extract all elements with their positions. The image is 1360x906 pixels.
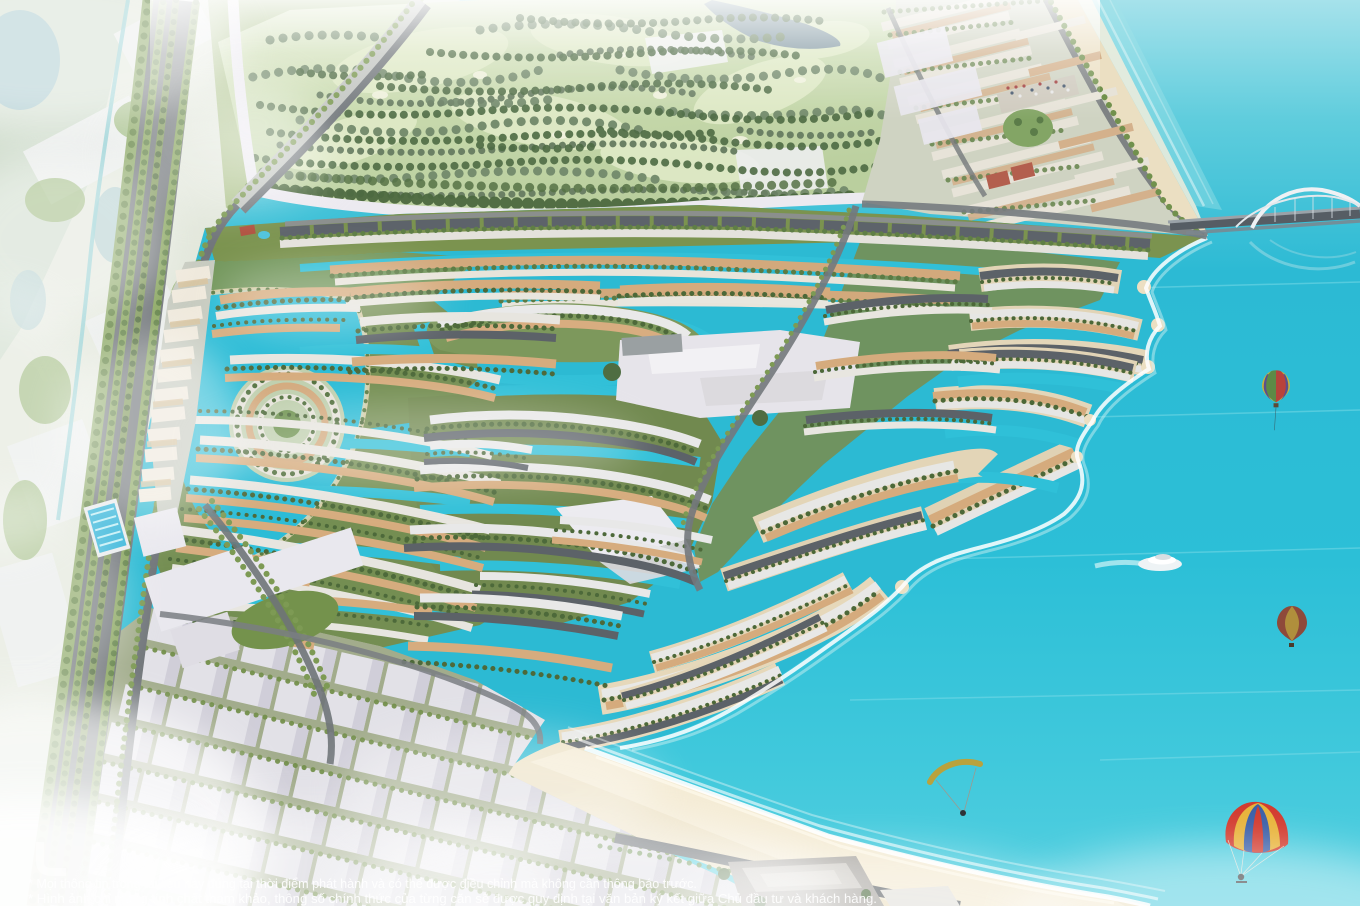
svg-text:* Mọi thông tin trong tài liệu: * Mọi thông tin trong tài liệu này đúng … [28,877,697,891]
svg-text:* Hình ảnh chỉ mang tính chất: * Hình ảnh chỉ mang tính chất tham khảo,… [28,891,877,906]
